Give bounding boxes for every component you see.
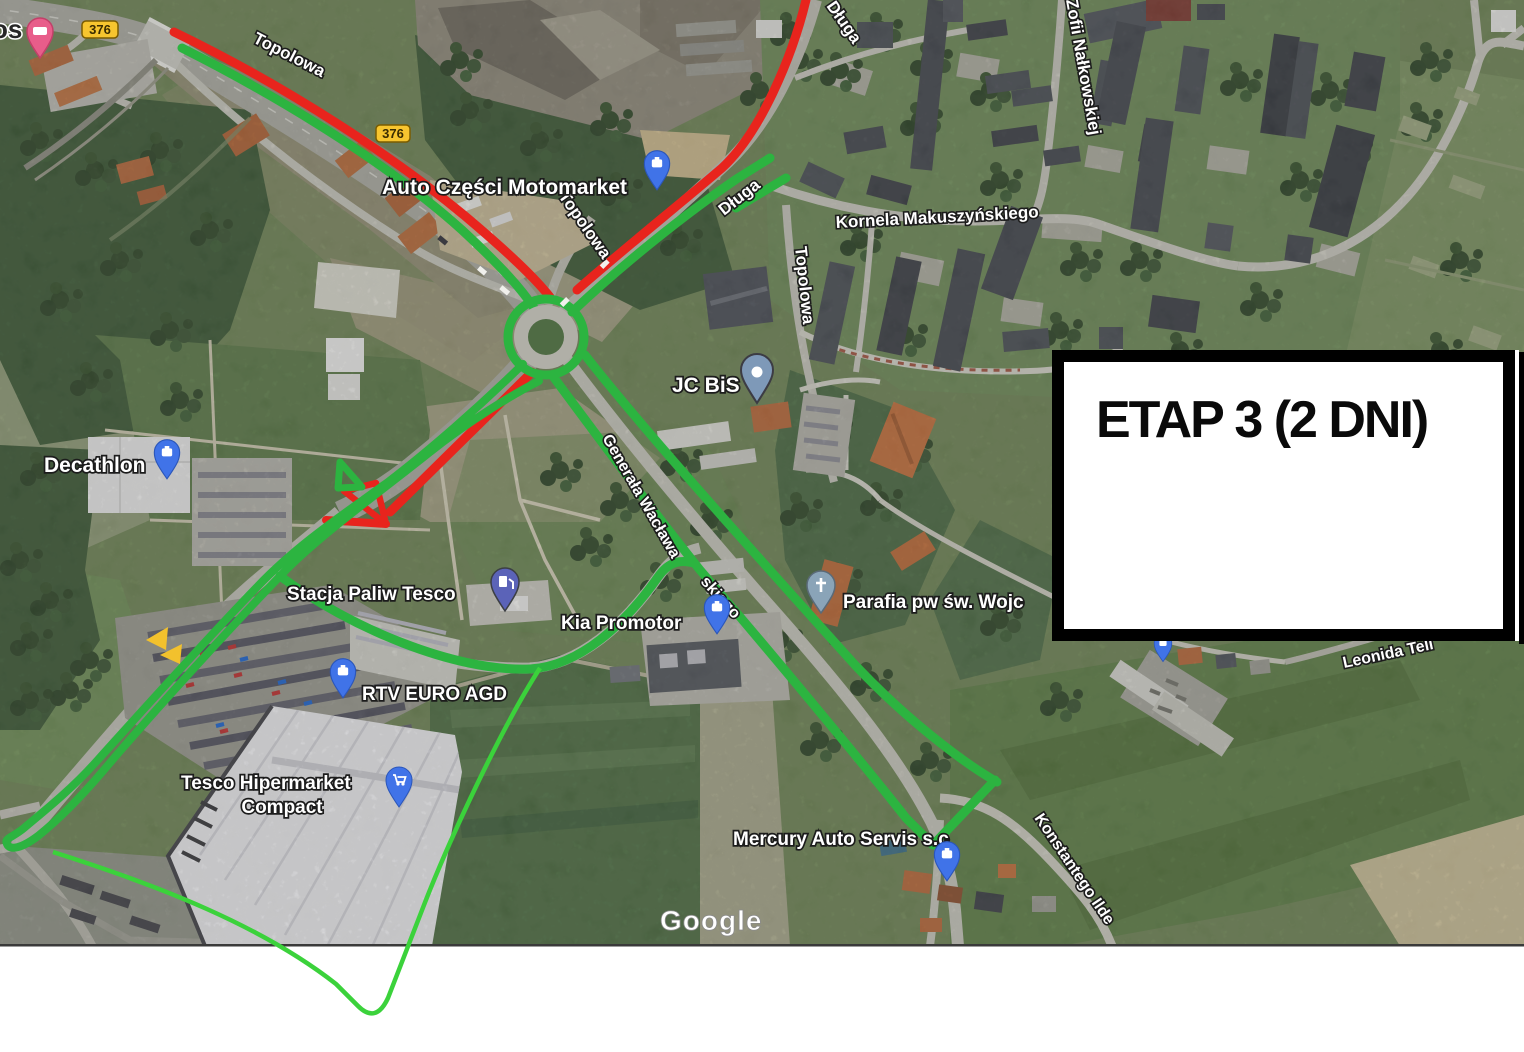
svg-text:JC BiS: JC BiS (672, 374, 740, 397)
svg-text:Decathlon: Decathlon (44, 454, 146, 477)
svg-text:Stacja Paliw Tesco: Stacja Paliw Tesco (287, 584, 456, 605)
svg-text:376: 376 (382, 126, 404, 141)
svg-text:os: os (0, 14, 22, 44)
svg-text:Auto Części Motomarket: Auto Części Motomarket (382, 176, 627, 199)
svg-text:Tesco Hipermarket: Tesco Hipermarket (181, 773, 351, 794)
svg-text:Parafia pw św. Wojc: Parafia pw św. Wojc (843, 592, 1024, 613)
svg-text:376: 376 (89, 22, 111, 37)
svg-text:Google: Google (660, 905, 762, 936)
svg-text:ETAP 3 (2 DNI): ETAP 3 (2 DNI) (1096, 391, 1427, 449)
svg-text:Kia Promotor: Kia Promotor (561, 613, 682, 634)
svg-text:Compact: Compact (241, 797, 323, 818)
svg-text:RTV EURO AGD: RTV EURO AGD (362, 684, 507, 705)
svg-text:Mercury Auto Servis s.c: Mercury Auto Servis s.c (733, 829, 949, 850)
